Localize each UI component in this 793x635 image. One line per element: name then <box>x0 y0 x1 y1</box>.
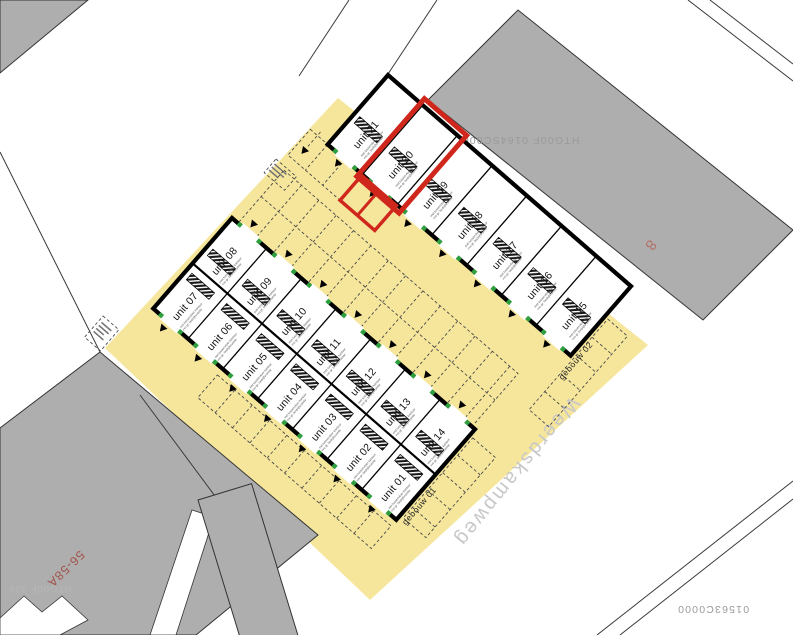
micro-text-line <box>101 322 112 332</box>
micro-text-line <box>98 325 109 335</box>
parcel-line <box>388 0 437 74</box>
site-plan-svg: HTG00F 0164SC0000 8 56-58A HTG00F 025 We… <box>0 0 793 635</box>
micro-text-line <box>93 331 104 341</box>
parcel-line <box>299 0 349 76</box>
parcel-id-top-right: HTG00F 0164SC0000 <box>455 134 580 146</box>
site-plan-canvas: HTG00F 0164SC0000 8 56-58A HTG00F 025 We… <box>0 0 793 635</box>
parcel-id-bottom-left: HTG00F 025 <box>9 583 72 594</box>
parcel-id-bottom-right: 01563C0000 <box>677 603 749 615</box>
neighbor-parcel-topleft <box>0 0 88 73</box>
parcel-line <box>688 0 793 81</box>
parcel-line <box>710 0 793 64</box>
parcel-line <box>0 152 100 352</box>
